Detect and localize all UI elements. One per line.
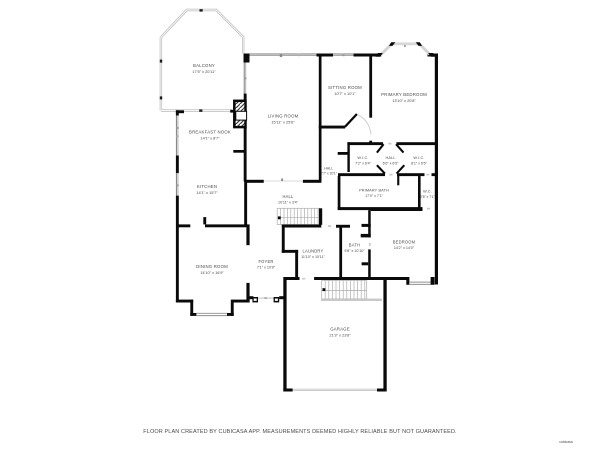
svg-text:14'1" x 8'7": 14'1" x 8'7" bbox=[200, 136, 220, 141]
svg-text:14'2" x 14'0": 14'2" x 14'0" bbox=[394, 246, 415, 250]
svg-text:BALCONY: BALCONY bbox=[193, 63, 215, 68]
svg-text:FLOOR PLAN CREATED BY CUBICASA: FLOOR PLAN CREATED BY CUBICASA APP. MEAS… bbox=[143, 429, 457, 435]
svg-text:15'11" x 25'6": 15'11" x 25'6" bbox=[271, 120, 295, 125]
svg-text:7'1" x 10'9": 7'1" x 10'9" bbox=[257, 266, 276, 270]
svg-text:W.C.: W.C. bbox=[423, 190, 432, 194]
svg-text:LAUNDRY: LAUNDRY bbox=[303, 249, 324, 254]
svg-text:2'8" x 7'1": 2'8" x 7'1" bbox=[420, 195, 435, 199]
svg-text:17'5" x 20'11": 17'5" x 20'11" bbox=[192, 69, 216, 74]
svg-text:11'10" x 10'11": 11'10" x 10'11" bbox=[301, 255, 325, 259]
svg-text:17'0" x 7'1": 17'0" x 7'1" bbox=[365, 194, 383, 198]
svg-text:W.I.C.: W.I.C. bbox=[357, 156, 368, 160]
svg-text:10'7" x 10'1": 10'7" x 10'1" bbox=[334, 91, 356, 96]
svg-text:BATH: BATH bbox=[349, 243, 360, 248]
svg-text:PRIMARY BEDROOM: PRIMARY BEDROOM bbox=[381, 92, 427, 97]
svg-text:DINING ROOM: DINING ROOM bbox=[196, 264, 228, 269]
svg-text:cubicasa: cubicasa bbox=[559, 440, 572, 444]
svg-text:FOYER: FOYER bbox=[258, 259, 273, 264]
svg-text:21'3" x 23'8": 21'3" x 23'8" bbox=[329, 333, 351, 338]
svg-text:HALL: HALL bbox=[282, 194, 294, 199]
svg-text:W.I.C.: W.I.C. bbox=[413, 156, 424, 160]
svg-text:PRIMARY BATH: PRIMARY BATH bbox=[359, 189, 389, 193]
svg-text:9'8" x 10'10": 9'8" x 10'10" bbox=[344, 249, 365, 253]
svg-text:GARAGE: GARAGE bbox=[330, 327, 350, 332]
svg-text:8'1" x 6'5": 8'1" x 6'5" bbox=[411, 161, 427, 165]
svg-text:HALL: HALL bbox=[324, 167, 333, 171]
svg-text:HALL: HALL bbox=[385, 156, 395, 160]
svg-text:6'6" x 6'5": 6'6" x 6'5" bbox=[383, 161, 399, 165]
svg-text:14'10" x 16'9": 14'10" x 16'9" bbox=[200, 270, 224, 275]
svg-text:14'1" x 15'7": 14'1" x 15'7" bbox=[196, 190, 218, 195]
svg-text:LIVING ROOM: LIVING ROOM bbox=[268, 114, 299, 119]
svg-text:13'10" x 20'8": 13'10" x 20'8" bbox=[392, 98, 416, 103]
svg-text:10'11" x 3'4": 10'11" x 3'4" bbox=[278, 201, 299, 205]
svg-text:KITCHEN: KITCHEN bbox=[197, 184, 217, 189]
svg-text:SITTING ROOM: SITTING ROOM bbox=[328, 85, 362, 90]
svg-text:BREAKFAST NOOK: BREAKFAST NOOK bbox=[189, 130, 231, 135]
svg-text:7'2" x 6'4": 7'2" x 6'4" bbox=[355, 161, 371, 165]
svg-text:2'7" x 20'1": 2'7" x 20'1" bbox=[321, 171, 338, 175]
svg-text:BEDROOM: BEDROOM bbox=[393, 240, 416, 245]
